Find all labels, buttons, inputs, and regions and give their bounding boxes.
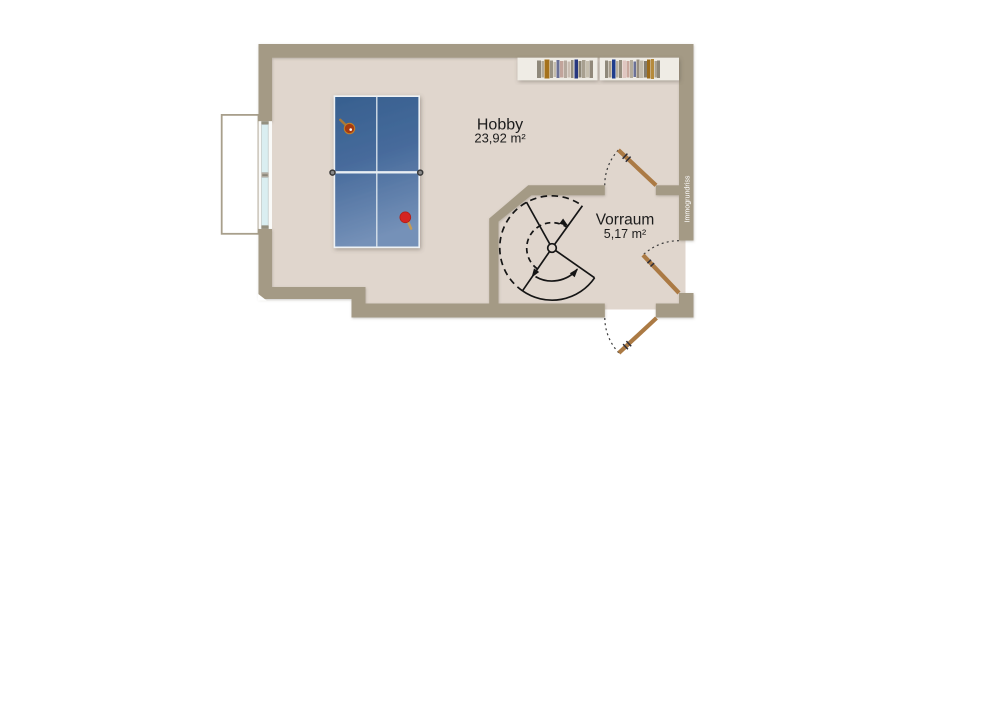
svg-text:5,17 m²: 5,17 m² <box>604 227 646 241</box>
svg-text:23,92 m²: 23,92 m² <box>474 131 526 146</box>
svg-text:Immogrundriss: Immogrundriss <box>684 175 692 222</box>
